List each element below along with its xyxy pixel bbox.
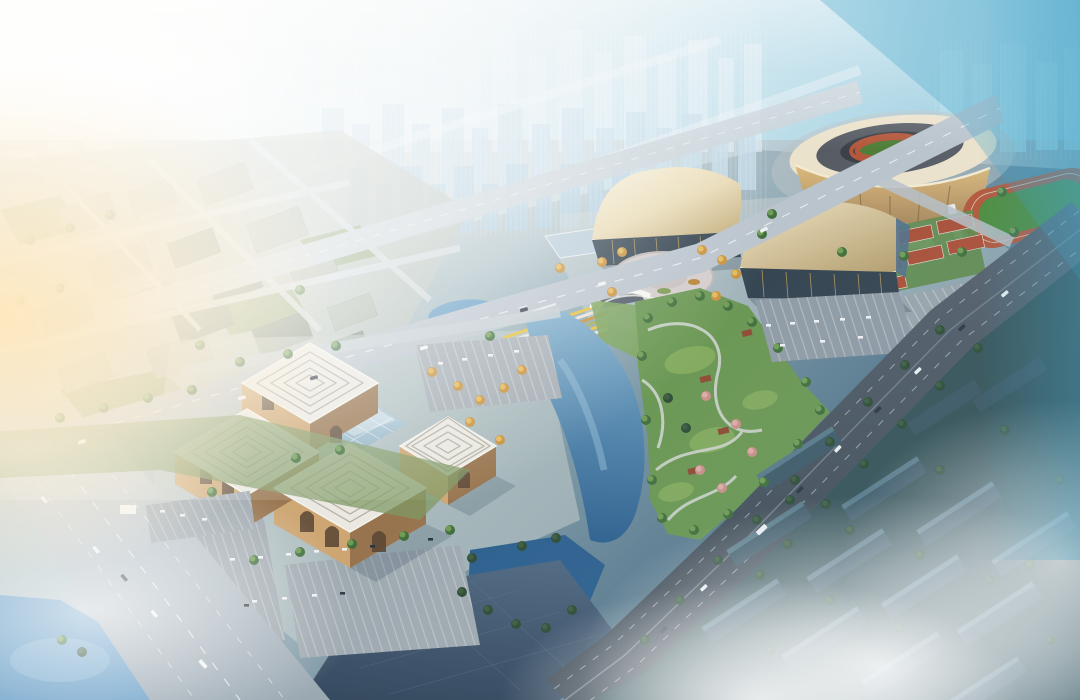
aerial-rendering: architectural-aerial-rendering bbox=[0, 0, 1080, 700]
atmosphere bbox=[0, 0, 1080, 700]
aerial-rendering-stage: architectural-aerial-rendering bbox=[0, 0, 1080, 700]
cyan-haze-right-edge bbox=[980, 0, 1080, 560]
